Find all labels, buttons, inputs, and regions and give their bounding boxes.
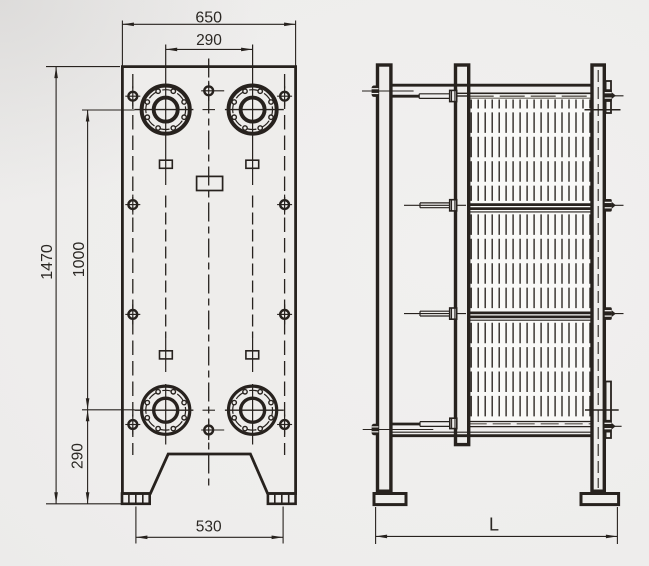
svg-text:290: 290 — [196, 32, 222, 49]
svg-text:290: 290 — [70, 443, 87, 469]
svg-text:530: 530 — [196, 519, 222, 536]
svg-text:L: L — [489, 515, 499, 535]
svg-text:1470: 1470 — [39, 244, 56, 280]
svg-text:1000: 1000 — [71, 242, 88, 278]
svg-text:650: 650 — [195, 9, 222, 26]
